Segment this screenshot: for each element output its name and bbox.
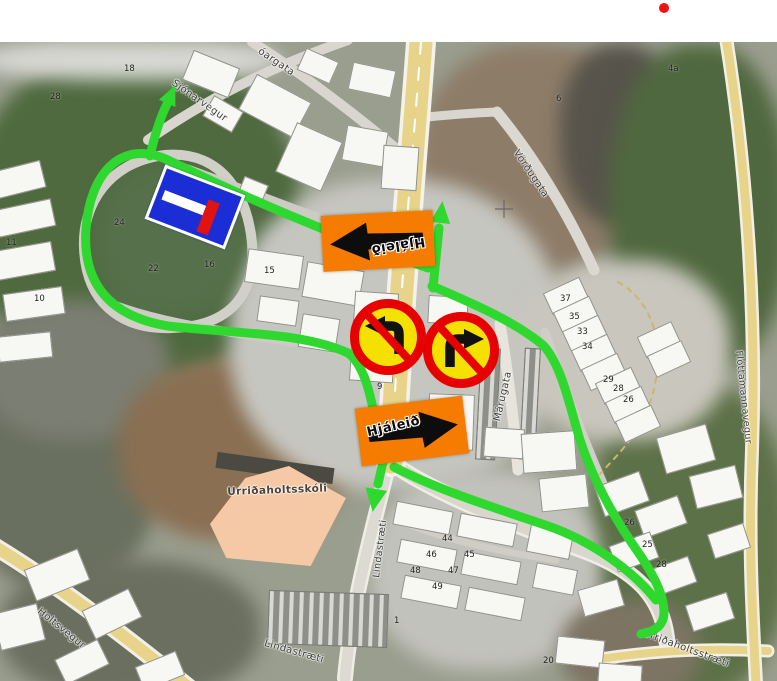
- building-number: 48: [410, 566, 421, 576]
- building-number: 28: [613, 384, 624, 394]
- building-number: 26: [623, 395, 634, 405]
- building-number: 4a: [668, 64, 679, 74]
- building-number: 33: [577, 327, 588, 337]
- building-number: 28: [656, 560, 667, 570]
- survey-crosshair-icon: [495, 200, 513, 218]
- building-number: 11: [6, 238, 17, 248]
- building-number: 24: [114, 218, 125, 228]
- building-number: 26: [624, 518, 635, 528]
- building-number: 34: [582, 342, 593, 352]
- terrain-patch: [0, 40, 280, 80]
- building: [256, 295, 299, 326]
- route-arrow-down-icon: [362, 487, 387, 513]
- building: [521, 430, 578, 474]
- detour-sign-top: Hjáleið: [321, 210, 436, 272]
- building-number: 28: [50, 92, 61, 102]
- building-number: 16: [204, 260, 215, 270]
- detour-map-canvas: SjónarveguróargataVörðugataFlóttamannave…: [0, 0, 777, 681]
- building: [538, 474, 589, 513]
- dead-end-road-bar: [162, 191, 207, 216]
- building-number: 25: [642, 540, 653, 550]
- building: [381, 145, 420, 191]
- building-number: 18: [124, 64, 135, 74]
- no-right-turn-sign: [422, 311, 500, 389]
- building-number: 49: [432, 582, 443, 592]
- building-number: 15: [264, 266, 275, 276]
- building-number: 1: [394, 616, 399, 626]
- parking-lot: [267, 590, 389, 648]
- building-number: 47: [448, 566, 459, 576]
- building-number: 44: [442, 534, 453, 544]
- aerial-map: SjónarveguróargataVörðugataFlóttamannave…: [0, 0, 777, 681]
- building: [483, 427, 525, 460]
- building: [597, 662, 642, 681]
- building: [298, 313, 341, 353]
- building: [297, 48, 340, 85]
- building-number: 45: [464, 550, 475, 560]
- building-number: 35: [569, 312, 580, 322]
- building-number: 22: [148, 264, 159, 274]
- no-left-turn-sign: [349, 298, 427, 376]
- building-number: 6: [556, 94, 561, 104]
- building-number: 20: [543, 656, 554, 666]
- building-number: 37: [560, 294, 571, 304]
- building-number: 10: [34, 294, 45, 304]
- red-dot-marker: [659, 3, 669, 13]
- building: [348, 62, 397, 99]
- building-number: 46: [426, 550, 437, 560]
- building-number: 9: [377, 382, 382, 392]
